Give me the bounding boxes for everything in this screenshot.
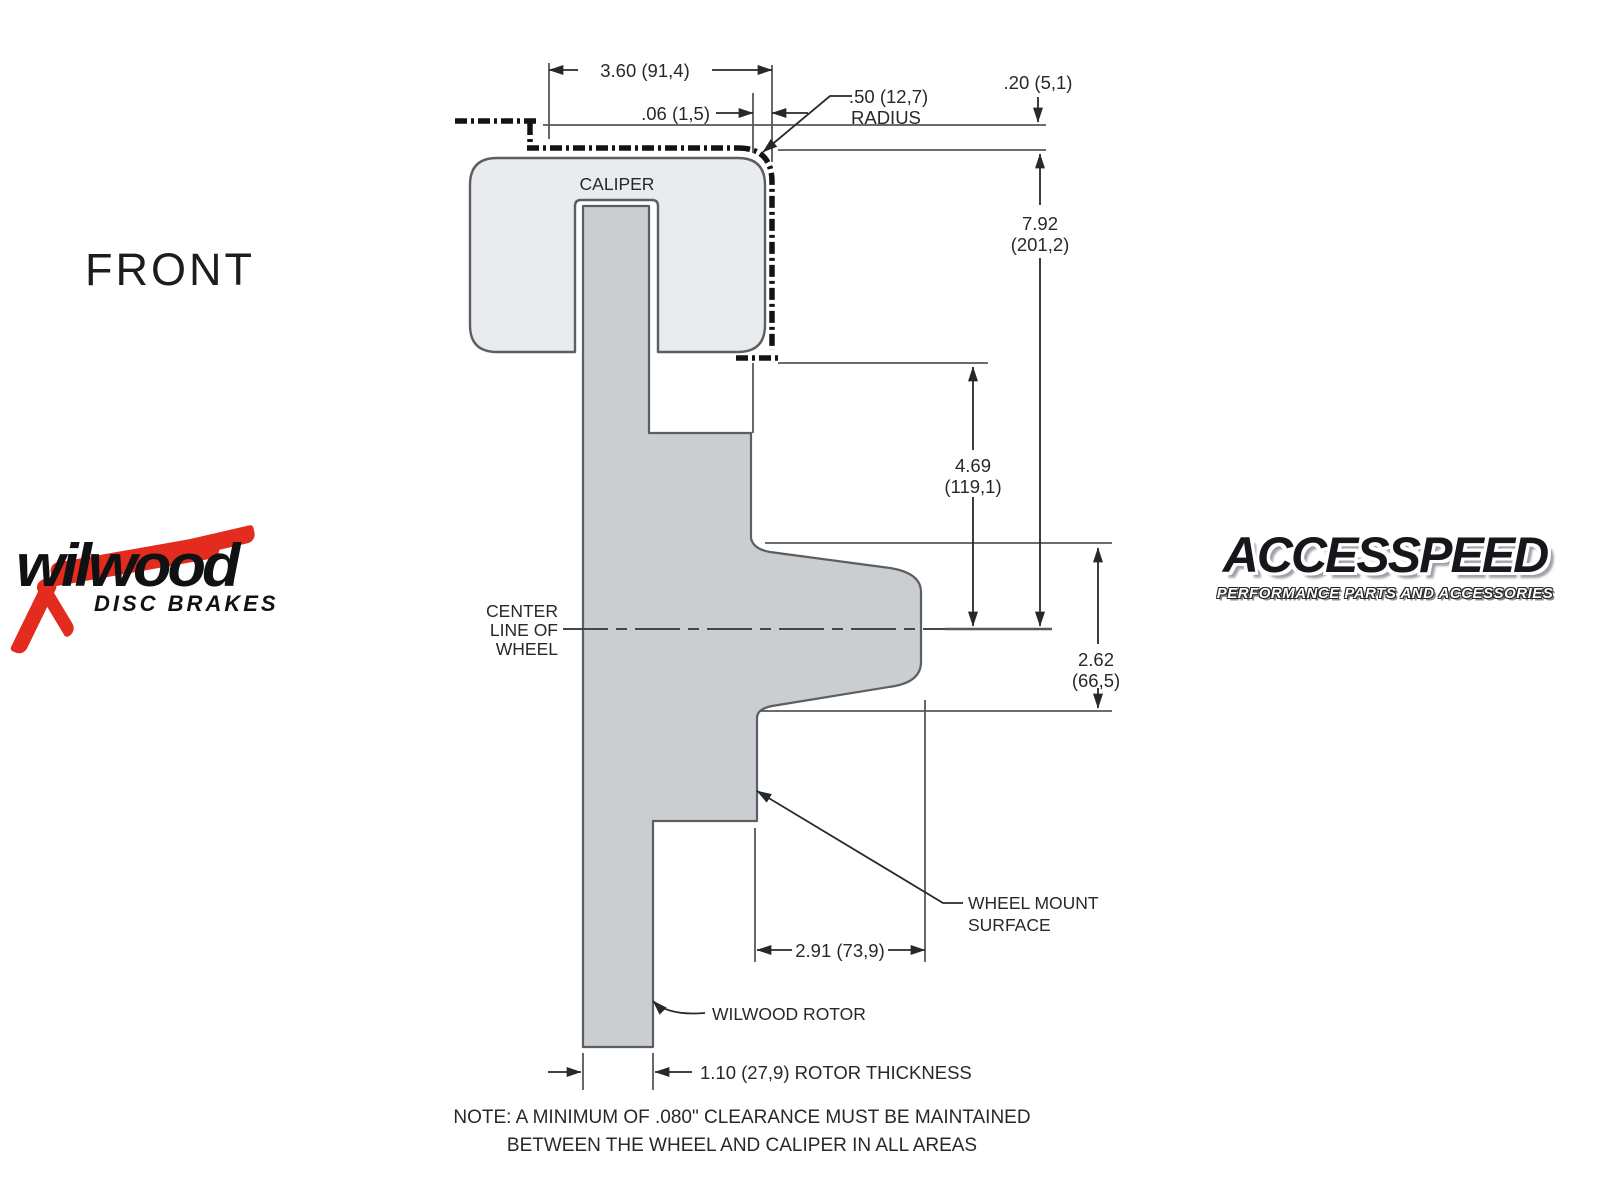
radius-value-label: .50 (12,7) [849, 86, 928, 107]
dim-06-label: .06 (1,5) [641, 103, 710, 124]
note-line-1: NOTE: A MINIMUM OF .080" CLEARANCE MUST … [453, 1107, 1030, 1128]
dim-262-mm-label: (66,5) [1072, 670, 1120, 691]
accesspeed-tagline: PERFORMANCE PARTS AND ACCESSORIES [1185, 585, 1585, 602]
note-line-2: BETWEEN THE WHEEL AND CALIPER IN ALL ARE… [507, 1135, 977, 1156]
dim-3-60-label: 3.60 (91,4) [600, 60, 689, 81]
dim-20-label: .20 (5,1) [1004, 72, 1073, 93]
wilwood-logo: wilwood DISC BRAKES [16, 533, 326, 663]
rotor-label: WILWOOD ROTOR [712, 1004, 866, 1024]
dim-262-in-label: 2.62 [1078, 649, 1114, 670]
centerline-label-1: CENTER [486, 601, 558, 621]
brake-dimension-drawing: FRONT 3.60 (91,4) .0 [0, 0, 1600, 1200]
centerline-label-3: WHEEL [496, 639, 559, 659]
dim-469-in-label: 4.69 [955, 455, 991, 476]
wheel-mount-label-2: SURFACE [968, 915, 1051, 935]
dim-291-label: 2.91 (73,9) [795, 940, 884, 961]
dim-792-in-label: 7.92 [1022, 213, 1058, 234]
wilwood-tagline: DISC BRAKES [16, 591, 326, 617]
radius-leader [763, 96, 852, 152]
view-title: FRONT [85, 244, 255, 295]
rotor-leader [653, 1001, 705, 1014]
wheel-mount-leader [757, 791, 963, 903]
dim-110-label: 1.10 (27,9) ROTOR THICKNESS [700, 1062, 972, 1083]
radius-word-label: RADIUS [851, 107, 921, 128]
dim-792-mm-label: (201,2) [1011, 234, 1070, 255]
wilwood-wordmark: wilwood [16, 535, 326, 598]
dim-469-mm-label: (119,1) [944, 476, 1001, 497]
wheel-mount-label-1: WHEEL MOUNT [968, 893, 1099, 913]
accesspeed-logo: ACCESSPEED PERFORMANCE PARTS AND ACCESSO… [1185, 527, 1585, 602]
centerline-label-2: LINE OF [490, 620, 558, 640]
caliper-label: CALIPER [580, 174, 655, 194]
accesspeed-wordmark: ACCESSPEED [1185, 527, 1585, 583]
